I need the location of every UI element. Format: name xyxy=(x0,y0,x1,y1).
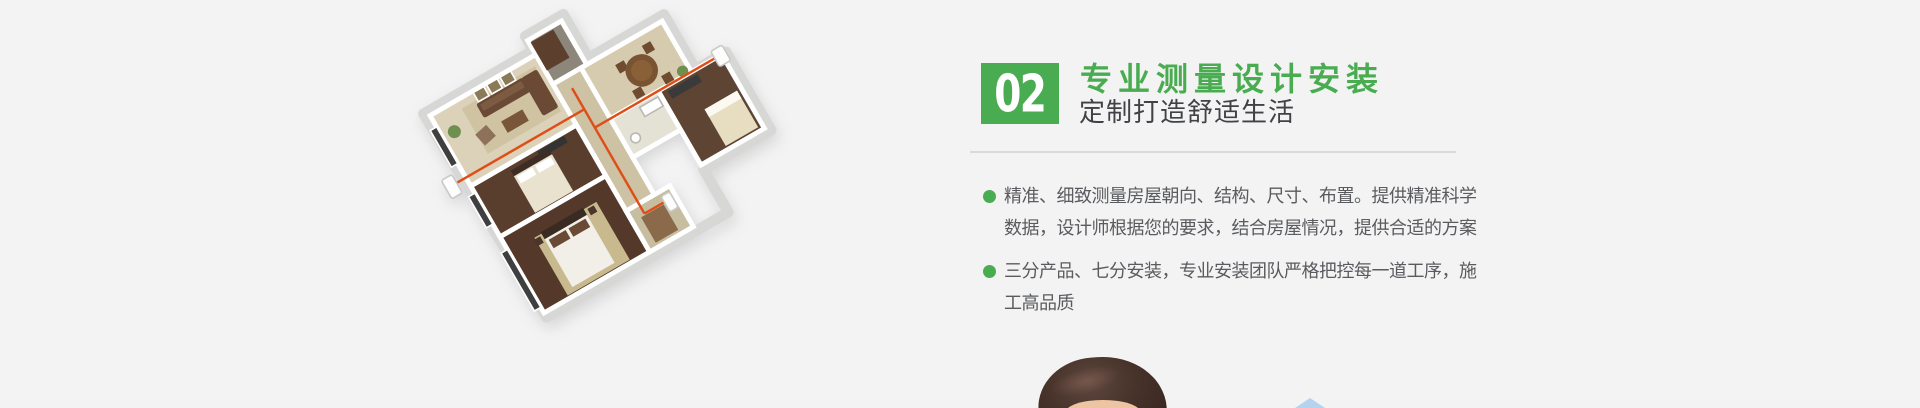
feature-line: 精准、细致测量房屋朝向、结构、尺寸、布置。提供精准科学 xyxy=(1004,181,1477,213)
feature-line: 数据，设计师根据您的要求，结合房屋情况，提供合适的方案 xyxy=(1004,213,1477,245)
feature-item: 精准、细致测量房屋朝向、结构、尺寸、布置。提供精准科学 数据，设计师根据您的要求… xyxy=(983,181,1503,245)
house-roof-icon xyxy=(1265,398,1355,408)
floorplan-image xyxy=(308,0,780,340)
divider xyxy=(970,151,1456,153)
section-subtitle: 定制打造舒适生活 xyxy=(1079,98,1295,128)
bullet-dot-icon xyxy=(983,190,996,203)
feature-line: 三分产品、七分安装，专业安装团队严格把控每一道工序，施 xyxy=(1004,256,1477,288)
step-badge: 02 xyxy=(981,63,1059,124)
marketing-section: 02 专业测量设计安装 定制打造舒适生活 精准、细致测量房屋朝向、结构、尺寸、布… xyxy=(0,0,1920,408)
section-title: 专业测量设计安装 xyxy=(1080,60,1384,98)
feature-text: 三分产品、七分安装，专业安装团队严格把控每一道工序，施 工高品质 xyxy=(1004,256,1477,320)
step-number: 02 xyxy=(994,68,1045,120)
feature-list: 精准、细致测量房屋朝向、结构、尺寸、布置。提供精准科学 数据，设计师根据您的要求… xyxy=(983,181,1503,331)
feature-item: 三分产品、七分安装，专业安装团队严格把控每一道工序，施 工高品质 xyxy=(983,256,1503,320)
feature-line: 工高品质 xyxy=(1004,288,1477,320)
feature-text: 精准、细致测量房屋朝向、结构、尺寸、布置。提供精准科学 数据，设计师根据您的要求… xyxy=(1004,181,1477,245)
bullet-dot-icon xyxy=(983,265,996,278)
